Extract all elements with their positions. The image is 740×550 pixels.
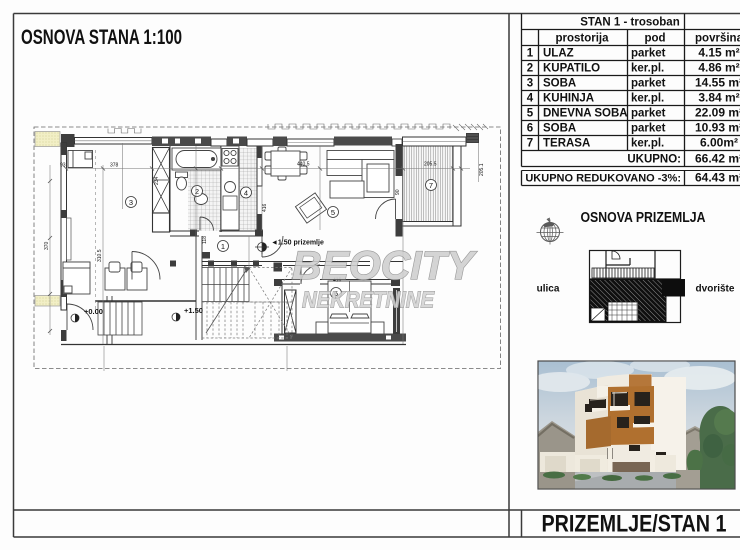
svg-text:PRIZEMLJE/STAN 1: PRIZEMLJE/STAN 1: [542, 511, 727, 538]
svg-text:NEKRETNINE: NEKRETNINE: [302, 287, 435, 313]
svg-text:površina: površina: [695, 33, 740, 45]
svg-text:parket: parket: [631, 108, 666, 120]
svg-text:6.00m²: 6.00m²: [700, 136, 738, 150]
svg-text:205.1: 205.1: [479, 163, 485, 176]
svg-text:90: 90: [395, 189, 401, 195]
svg-text:SOBA: SOBA: [543, 123, 576, 135]
svg-text:93: 93: [60, 163, 66, 169]
svg-text:1: 1: [221, 242, 225, 251]
svg-text:KUPATILO: KUPATILO: [543, 63, 600, 75]
svg-text:416: 416: [262, 203, 268, 212]
svg-text:prostorija: prostorija: [555, 33, 609, 45]
svg-text:dvorište: dvorište: [696, 284, 735, 295]
svg-text:4: 4: [527, 93, 534, 105]
svg-text:+1.50: +1.50: [184, 306, 203, 315]
svg-text:ker.pl.: ker.pl.: [631, 93, 664, 105]
svg-text:7: 7: [527, 138, 533, 150]
svg-text:parket: parket: [631, 78, 666, 90]
svg-text:OSNOVA PRIZEMLJA: OSNOVA PRIZEMLJA: [581, 210, 706, 226]
svg-text:5: 5: [527, 108, 534, 120]
svg-text:378: 378: [110, 163, 119, 169]
svg-text:440.5: 440.5: [297, 162, 310, 168]
svg-text:KUHINJA: KUHINJA: [543, 93, 594, 105]
svg-text:OSNOVA STANA 1:100: OSNOVA STANA 1:100: [21, 25, 182, 49]
svg-text:DNEVNA SOBA: DNEVNA SOBA: [543, 108, 628, 120]
svg-text:14.55 m²: 14.55 m²: [695, 76, 740, 90]
svg-text:+0.00: +0.00: [84, 307, 103, 316]
svg-text:310.5: 310.5: [97, 249, 103, 262]
svg-text:118: 118: [202, 236, 208, 244]
svg-text:ulica: ulica: [537, 284, 560, 295]
svg-text:10.93 m²: 10.93 m²: [695, 121, 740, 135]
svg-text:3: 3: [129, 198, 133, 207]
svg-text:ker.pl.: ker.pl.: [631, 63, 664, 75]
svg-text:UKUPNO:: UKUPNO:: [627, 154, 681, 166]
svg-text:3.84 m²: 3.84 m²: [698, 91, 739, 105]
svg-text:ker.pl.: ker.pl.: [631, 138, 664, 150]
svg-text:4.15 m²: 4.15 m²: [698, 46, 739, 60]
svg-text:BEOCITY: BEOCITY: [292, 244, 477, 288]
svg-text:4.86 m²: 4.86 m²: [698, 61, 739, 75]
svg-text:2: 2: [195, 187, 199, 196]
svg-text:pod: pod: [644, 33, 665, 45]
svg-text:1: 1: [527, 48, 534, 60]
svg-text:370: 370: [44, 241, 50, 250]
svg-text:UKUPNO REDUKOVANO -3%:: UKUPNO REDUKOVANO -3%:: [525, 173, 681, 185]
svg-text:ULAZ: ULAZ: [543, 48, 574, 60]
svg-text:2: 2: [527, 63, 533, 75]
svg-text:22.09 m²: 22.09 m²: [695, 106, 740, 120]
svg-text:4: 4: [244, 188, 248, 197]
svg-text:TERASA: TERASA: [543, 138, 590, 150]
svg-text:SOBA: SOBA: [543, 78, 576, 90]
svg-text:parket: parket: [631, 48, 666, 60]
svg-text:234: 234: [154, 176, 160, 185]
svg-text:3: 3: [527, 78, 533, 90]
svg-text:STAN 1 - trosoban: STAN 1 - trosoban: [580, 17, 679, 29]
svg-text:5: 5: [331, 208, 335, 217]
svg-text:66.42 m²: 66.42 m²: [695, 152, 740, 166]
svg-text:7: 7: [429, 181, 433, 190]
svg-text:parket: parket: [631, 123, 666, 135]
svg-text:64.43 m²: 64.43 m²: [695, 171, 740, 185]
svg-text:6: 6: [527, 123, 533, 135]
svg-text:205.5: 205.5: [424, 162, 437, 168]
